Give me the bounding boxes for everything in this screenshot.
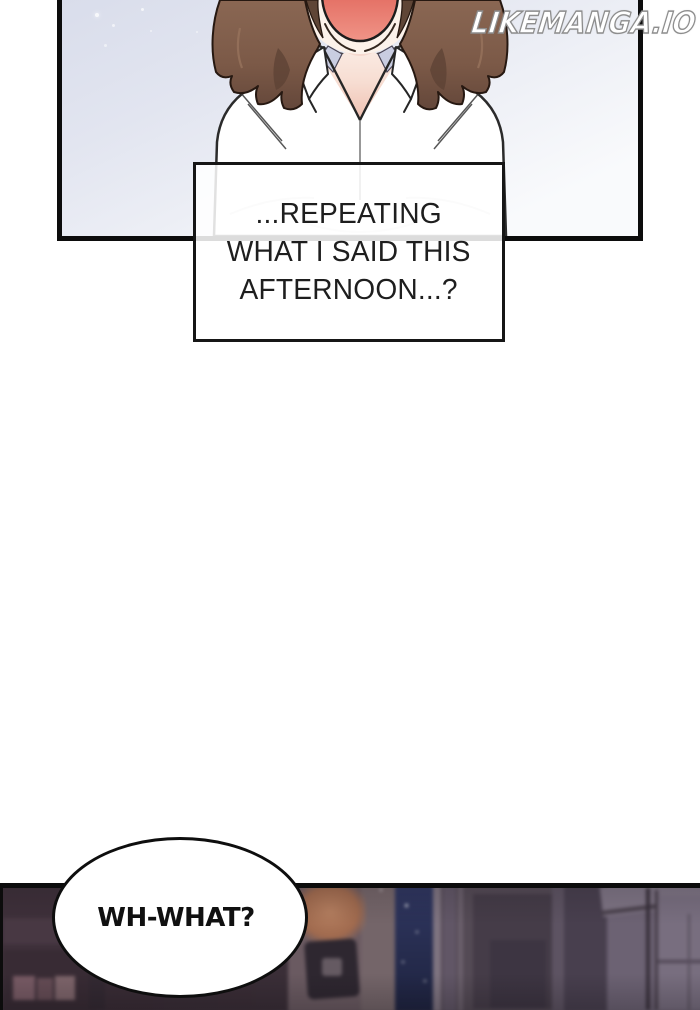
speech-text: WH-WHAT? (97, 903, 262, 933)
caption-line-3: AFTERNOON...? (227, 271, 471, 309)
caption-line-1: ...REPEATING (227, 195, 471, 233)
site-watermark-text: LIKEMANGA.IO (470, 6, 698, 41)
caption-text: ...REPEATING WHAT I SAID THIS AFTERNOON.… (227, 195, 471, 309)
speech-bubble: WH-WHAT? (52, 837, 308, 998)
caption-box: ...REPEATING WHAT I SAID THIS AFTERNOON.… (193, 162, 505, 342)
site-watermark: LIKEMANGA.IO (449, 6, 698, 41)
caption-line-2: WHAT I SAID THIS (227, 233, 471, 271)
